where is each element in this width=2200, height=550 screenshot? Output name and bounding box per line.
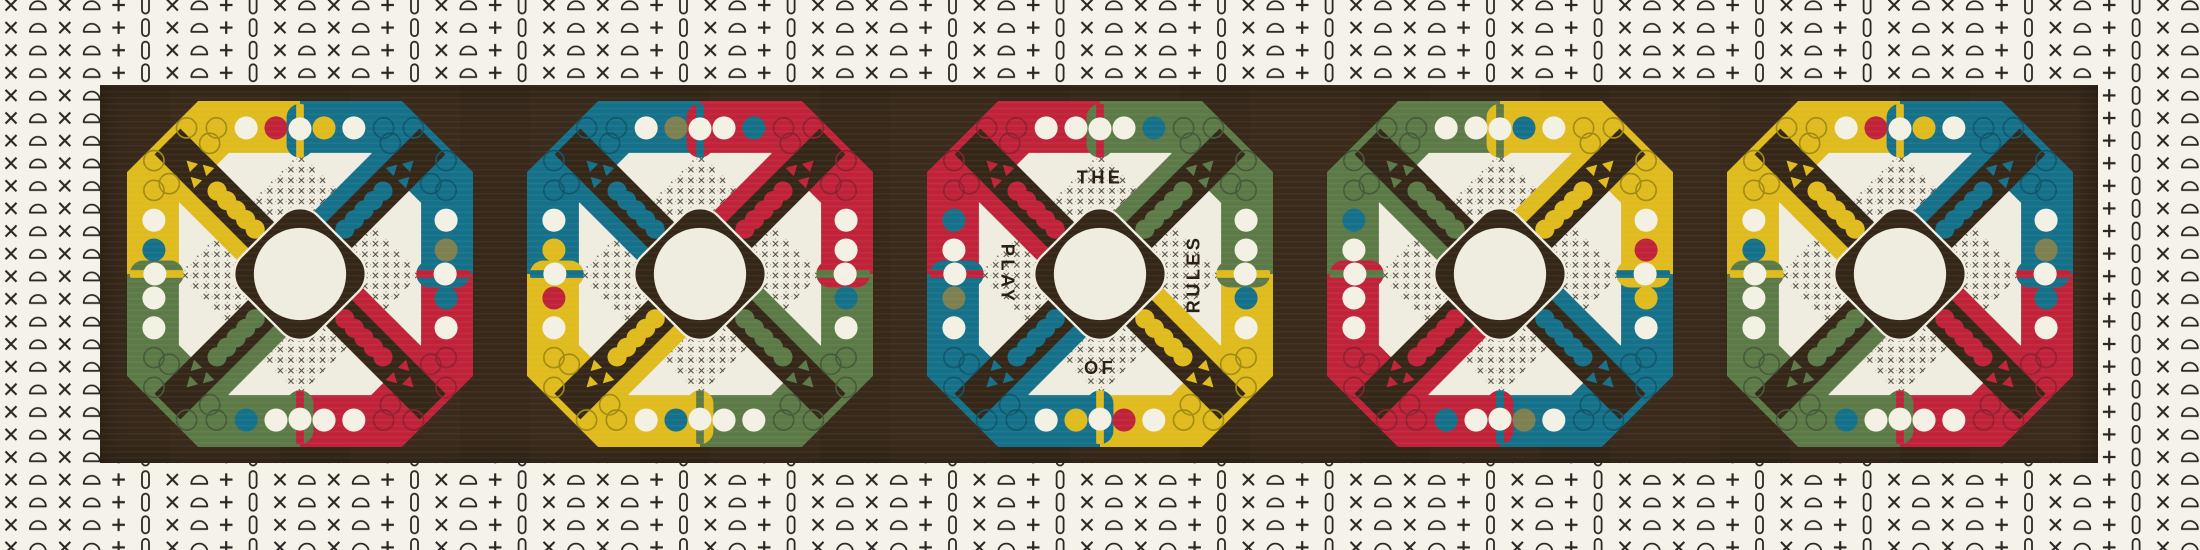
board-slot-5	[1727, 101, 2073, 447]
grain-overlay	[127, 101, 473, 447]
board-word-left: PLAY	[997, 244, 1018, 304]
game-board-3: THEOFPLAYRULES	[927, 101, 1273, 447]
game-board-1	[127, 101, 473, 447]
game-board-5	[1727, 101, 2073, 447]
grain-overlay	[927, 101, 1273, 447]
board-slot-3: THEOFPLAYRULES	[927, 101, 1273, 447]
game-board-2	[527, 101, 873, 447]
wood-panel: THEOFPLAYRULES	[100, 85, 2098, 463]
board-word-top: THE	[1077, 167, 1124, 188]
fabric-panel-artwork: THEOFPLAYRULES	[0, 0, 2200, 550]
board-word-bottom: OF	[1084, 357, 1116, 378]
board-word-right: RULES	[1182, 235, 1203, 314]
grain-overlay	[1327, 101, 1673, 447]
board-slot-2	[527, 101, 873, 447]
board-slot-1	[127, 101, 473, 447]
grain-overlay	[1727, 101, 2073, 447]
game-board-4	[1327, 101, 1673, 447]
board-slot-4	[1327, 101, 1673, 447]
grain-overlay	[527, 101, 873, 447]
